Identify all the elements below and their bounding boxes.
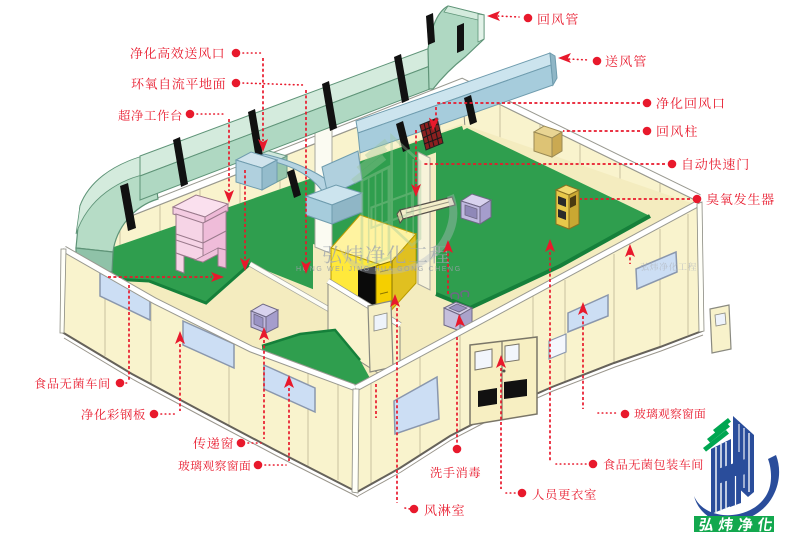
- svg-text:HONG WEI JING HUA GONG CHENG: HONG WEI JING HUA GONG CHENG: [296, 266, 462, 273]
